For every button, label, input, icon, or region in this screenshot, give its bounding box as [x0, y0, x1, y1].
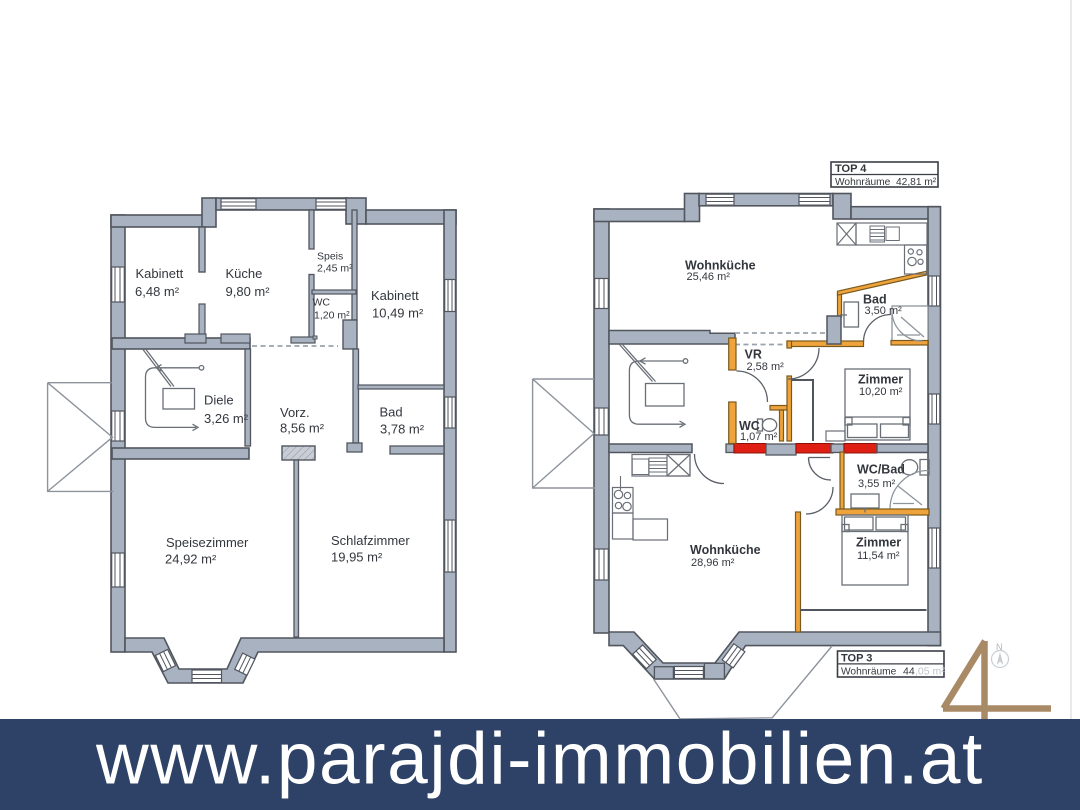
svg-text:Zimmer: Zimmer — [856, 536, 901, 550]
svg-text:6,48 m²: 6,48 m² — [135, 284, 180, 299]
svg-text:Wohnräume: Wohnräume — [835, 177, 891, 188]
svg-text:Zimmer: Zimmer — [858, 373, 903, 387]
svg-text:Speis: Speis — [317, 251, 343, 263]
svg-text:Schlafzimmer: Schlafzimmer — [331, 533, 410, 548]
svg-text:11,54 m²: 11,54 m² — [857, 550, 900, 562]
svg-text:28,96 m²: 28,96 m² — [691, 557, 735, 569]
svg-text:25,46 m²: 25,46 m² — [687, 271, 731, 283]
svg-text:3,50 m²: 3,50 m² — [865, 305, 903, 317]
svg-text:TOP 3: TOP 3 — [841, 653, 872, 665]
svg-text:Wohnräume: Wohnräume — [841, 667, 897, 678]
svg-text:Kabinett: Kabinett — [136, 266, 184, 281]
svg-text:Wohnküche: Wohnküche — [690, 543, 761, 557]
svg-text:www.parajdi-immobilien.at: www.parajdi-immobilien.at — [95, 719, 984, 800]
svg-text:Vorz.: Vorz. — [280, 405, 310, 420]
svg-text:Bad: Bad — [380, 405, 403, 420]
svg-text:19,95 m²: 19,95 m² — [331, 550, 383, 565]
svg-text:2,45 m²: 2,45 m² — [317, 263, 353, 275]
svg-text:Speisezimmer: Speisezimmer — [166, 535, 249, 550]
svg-text:1,07 m²: 1,07 m² — [740, 431, 778, 443]
svg-text:3,78 m²: 3,78 m² — [380, 422, 425, 437]
svg-text:Kabinett: Kabinett — [371, 288, 419, 303]
svg-text:,05 m²: ,05 m² — [915, 666, 945, 678]
svg-text:Diele: Diele — [204, 393, 234, 408]
svg-text:3,55 m²: 3,55 m² — [858, 478, 896, 490]
svg-text:VR: VR — [745, 348, 762, 362]
svg-text:10,20 m²: 10,20 m² — [859, 386, 903, 398]
svg-text:WC/Bad: WC/Bad — [857, 463, 905, 477]
svg-text:1,20 m²: 1,20 m² — [314, 310, 350, 322]
svg-text:42,81 m²: 42,81 m² — [896, 177, 937, 188]
svg-text:3,26 m²: 3,26 m² — [204, 411, 249, 426]
svg-text:2,58 m²: 2,58 m² — [747, 361, 785, 373]
svg-text:TOP 4: TOP 4 — [835, 163, 867, 175]
svg-text:9,80 m²: 9,80 m² — [226, 284, 271, 299]
svg-text:10,49 m²: 10,49 m² — [372, 306, 424, 321]
svg-text:WC: WC — [313, 297, 331, 309]
svg-text:24,92 m²: 24,92 m² — [165, 552, 217, 567]
svg-text:8,56 m²: 8,56 m² — [280, 421, 325, 436]
svg-text:Küche: Küche — [226, 266, 263, 281]
svg-text:N: N — [996, 642, 1003, 652]
svg-text:44: 44 — [903, 666, 915, 678]
